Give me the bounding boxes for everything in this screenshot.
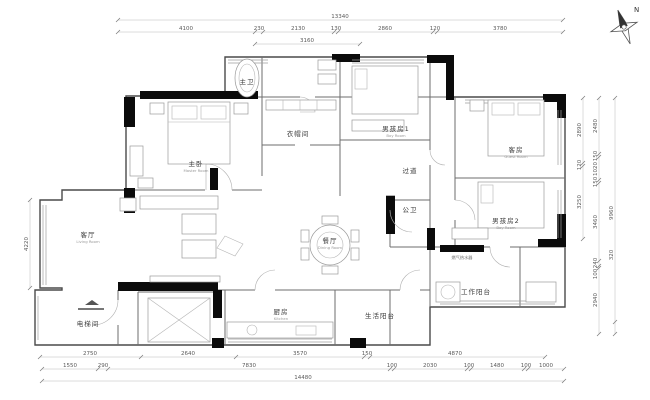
floor-plan-canvas: N 13340410023021301302860120378031602750… (0, 0, 650, 400)
dim-label: 100 (521, 363, 532, 369)
room-label: 主卫 (240, 77, 255, 86)
dim-label: 7830 (242, 363, 256, 369)
dim-label: 2890 (577, 123, 583, 137)
dim-label: 150 (362, 351, 373, 357)
dim-label: 130 (331, 26, 342, 32)
dim-label: 240 (593, 257, 599, 268)
room-label: 电梯间 (77, 319, 100, 328)
room-sublabel: Master Room (184, 168, 209, 173)
compass-icon: N (605, 5, 644, 48)
room-sublabel: Dining Room (318, 245, 343, 250)
dim-label: 150 (593, 176, 599, 187)
dim-label: 3460 (593, 215, 599, 229)
coffee-table (182, 214, 216, 234)
dim-label: 4870 (448, 351, 462, 357)
dim-label: 3570 (293, 351, 307, 357)
dim-label: 3160 (300, 38, 314, 44)
kitchen-counter (227, 322, 333, 338)
dim-label: 1000 (539, 363, 553, 369)
room-label: 燃气热水器 (452, 254, 474, 261)
dim-label: 1480 (490, 363, 504, 369)
side-table (182, 240, 216, 258)
dim-label: 2030 (423, 363, 437, 369)
room-label: 生活阳台 (365, 311, 395, 320)
dim-label: 1550 (63, 363, 77, 369)
chair (138, 178, 153, 188)
dim-label: 9960 (609, 206, 615, 220)
dim-label: 13340 (331, 14, 349, 20)
room-label: 主卧 (189, 159, 204, 168)
entry-mark (85, 300, 99, 305)
room-sublabel: Boy Room (386, 133, 405, 138)
dim-label: 1020 (593, 162, 599, 176)
tv-cabinet (150, 276, 220, 282)
furniture (78, 59, 556, 342)
dim-label: 2860 (378, 26, 392, 32)
room-label: 过道 (403, 166, 418, 175)
cabinet (526, 282, 556, 302)
dresser (130, 146, 143, 176)
room-label: 客房 (509, 145, 524, 154)
room-label: 工作阳台 (461, 287, 491, 296)
room-label: 衣帽间 (287, 129, 310, 138)
dim-label: 2750 (83, 351, 97, 357)
dim-label: 4220 (24, 237, 30, 251)
dim-label: 100 (387, 363, 398, 369)
sofa (140, 196, 218, 209)
armchair (120, 198, 136, 211)
dim-label: 150 (593, 150, 599, 161)
dim-label: 120 (430, 26, 441, 32)
dim-label: 2130 (291, 26, 305, 32)
nightstand (234, 103, 248, 114)
vanity (318, 60, 336, 70)
room-label: 男孩房2 (492, 216, 520, 225)
dim-label: 2640 (181, 351, 195, 357)
compass-north-label: N (634, 6, 639, 14)
dim-label: 4100 (179, 26, 193, 32)
dim-label: 290 (98, 363, 109, 369)
nightstand (150, 103, 164, 114)
dim-label: 230 (254, 26, 265, 32)
wardrobe (266, 100, 336, 110)
dim-label: 2480 (593, 119, 599, 133)
nightstand (470, 100, 484, 111)
dim-label: 2940 (593, 293, 599, 307)
room-sublabel: Living Room (76, 239, 100, 244)
room-sublabel: Boy Room (496, 225, 515, 230)
room-sublabel: Guest Room (504, 154, 527, 159)
room-label: 厨房 (274, 307, 289, 316)
dim-label: 3780 (493, 26, 507, 32)
dim-label: 14480 (294, 375, 312, 381)
dim-label: 100 (593, 268, 599, 279)
dim-label: 3250 (577, 195, 583, 209)
room-sublabel: Kitchen (274, 316, 289, 321)
room-label: 餐厅 (323, 236, 338, 245)
room-label: 客厅 (81, 230, 96, 239)
dim-label: 320 (609, 249, 615, 260)
toilet (318, 74, 336, 84)
room-label: 公卫 (403, 206, 418, 214)
master-bed (168, 102, 230, 164)
dim-label: 120 (577, 159, 583, 170)
dim-label: 100 (464, 363, 475, 369)
desk (452, 228, 488, 239)
room-label: 男孩房1 (382, 124, 410, 133)
bed (352, 66, 418, 114)
